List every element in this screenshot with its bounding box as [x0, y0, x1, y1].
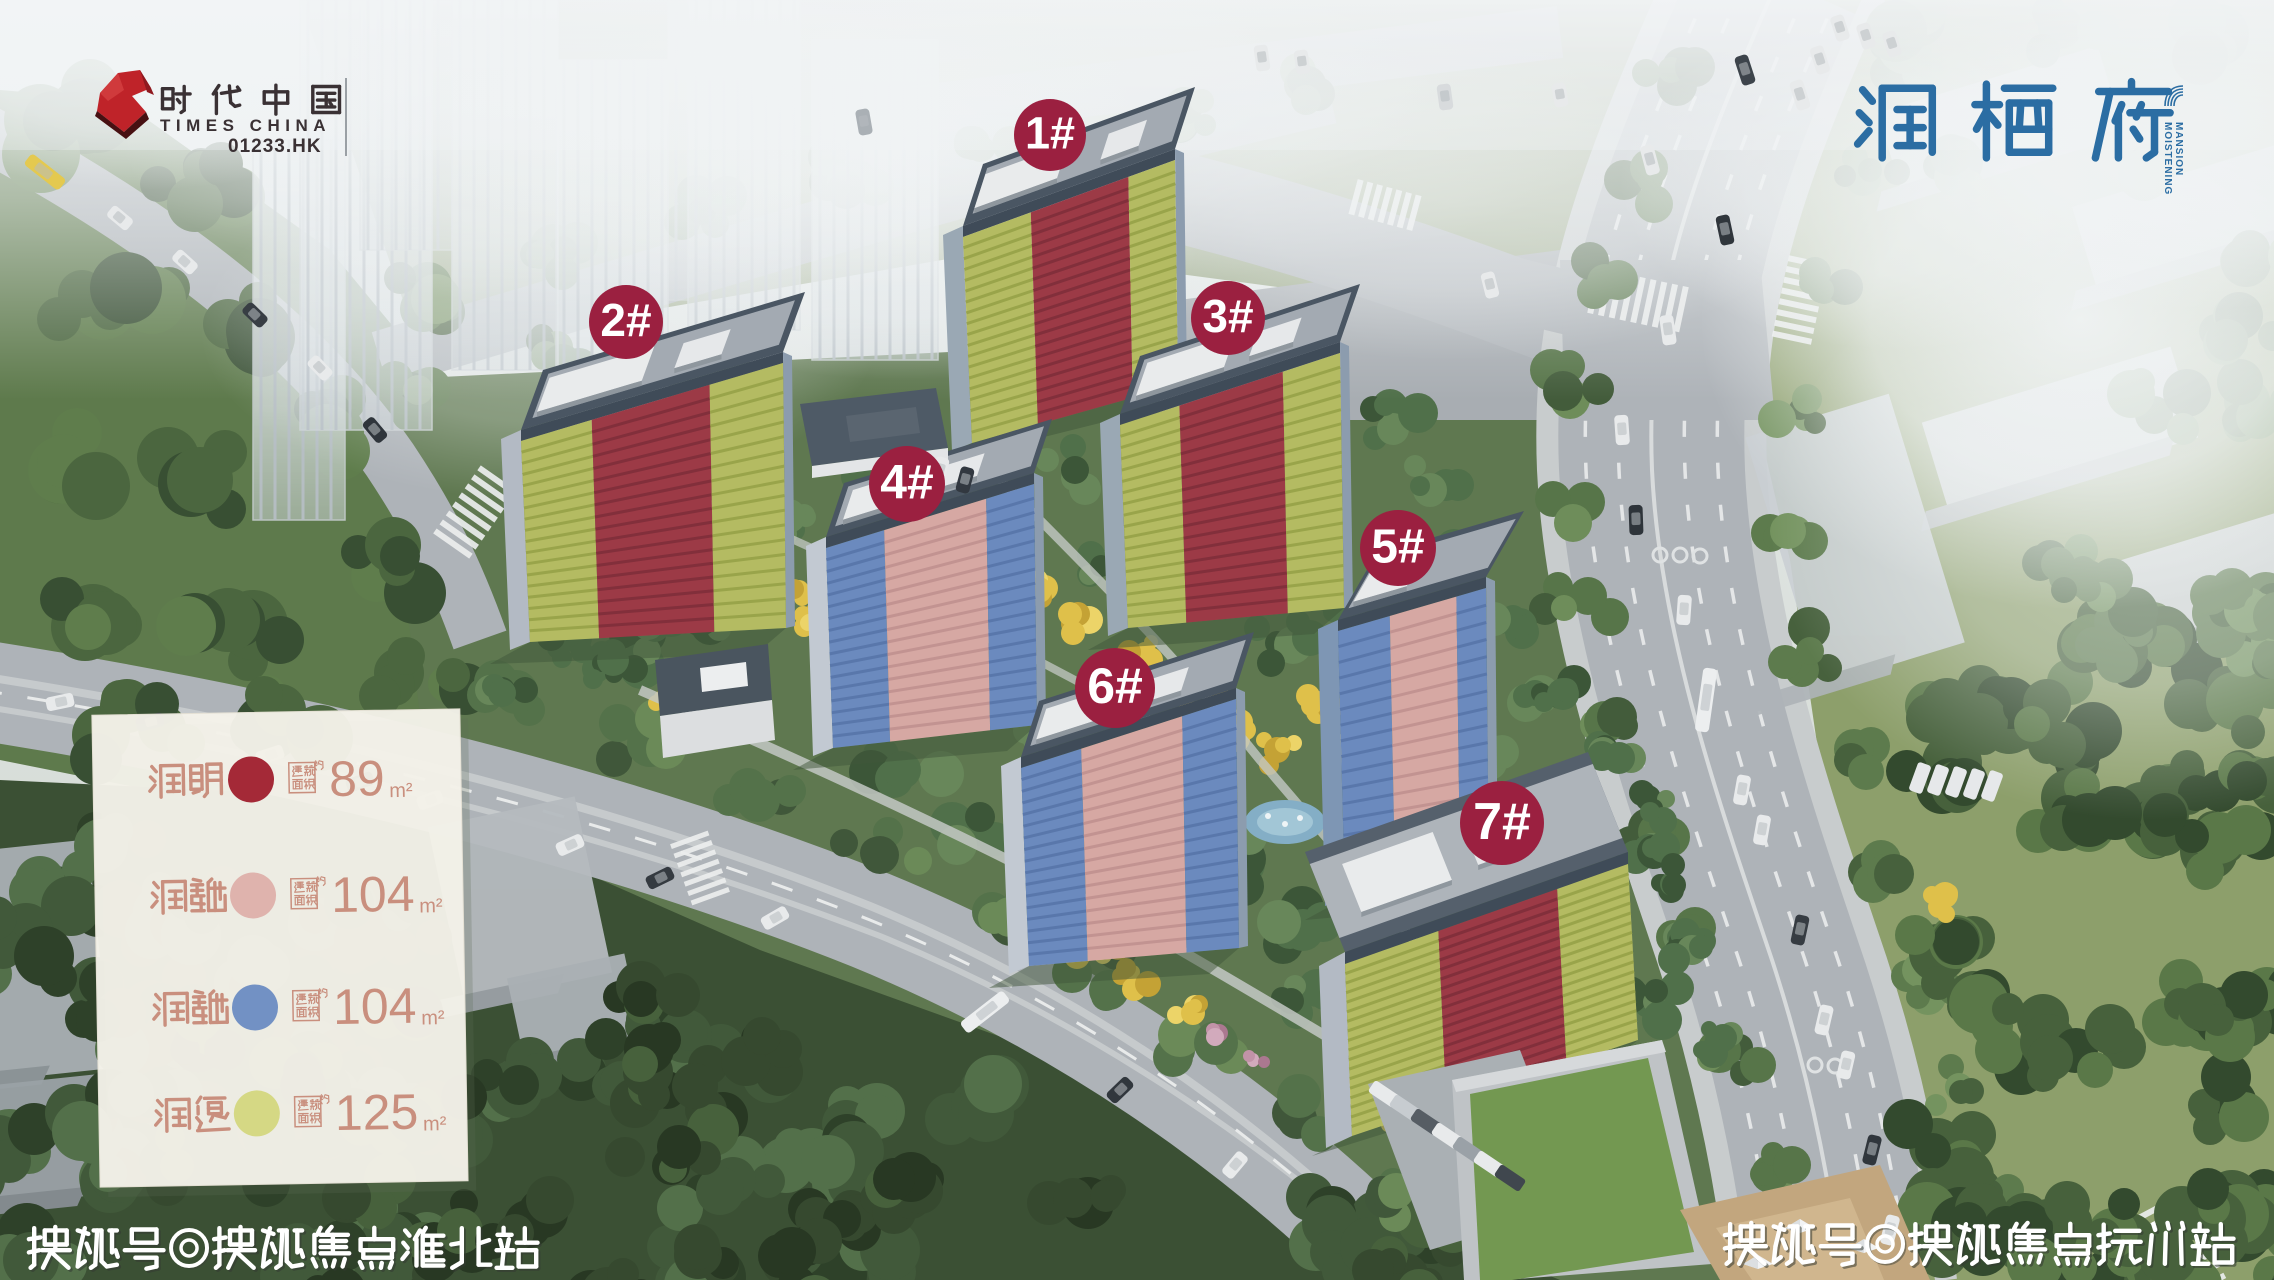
svg-text:5#: 5#	[1371, 520, 1424, 573]
svg-text:4#: 4#	[880, 456, 933, 509]
svg-text:01233.HK: 01233.HK	[228, 136, 322, 157]
svg-text:89: 89	[329, 750, 386, 807]
svg-text:125: 125	[334, 1084, 418, 1141]
svg-text:2#: 2#	[600, 294, 651, 346]
svg-text:m²: m²	[423, 1113, 447, 1135]
svg-text:7#: 7#	[1473, 793, 1531, 851]
svg-text:m²: m²	[419, 895, 443, 917]
svg-text:1#: 1#	[1025, 108, 1075, 159]
svg-text:MANSION: MANSION	[2173, 122, 2184, 176]
svg-text:TIMES CHINA: TIMES CHINA	[160, 116, 331, 135]
svg-text:m²: m²	[389, 780, 413, 802]
svg-text:6#: 6#	[1087, 658, 1143, 714]
svg-text:104: 104	[333, 978, 417, 1035]
svg-text:3#: 3#	[1202, 290, 1253, 342]
svg-text:104: 104	[331, 866, 415, 923]
svg-text:MOISTENING: MOISTENING	[2162, 122, 2173, 195]
svg-text:m²: m²	[421, 1007, 445, 1029]
